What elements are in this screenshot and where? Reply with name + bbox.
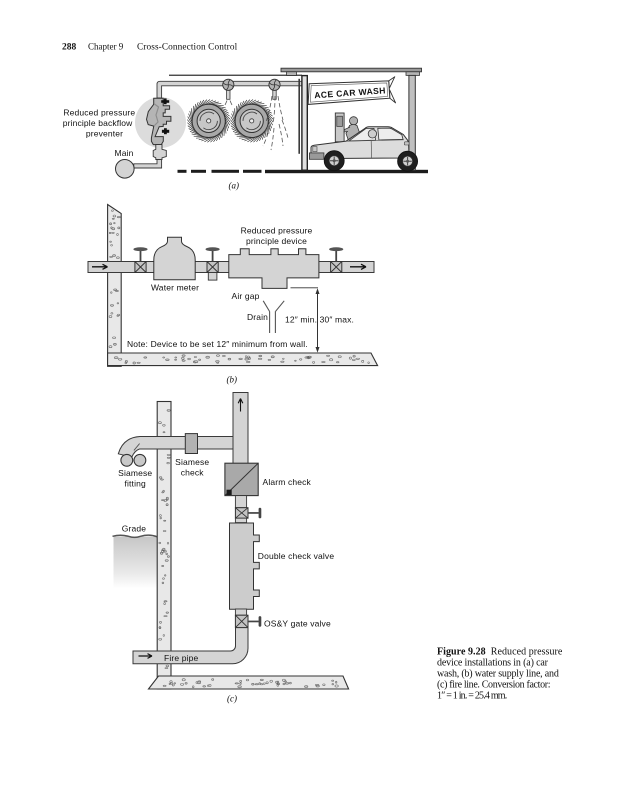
svg-text:288: 288 <box>62 43 77 53</box>
svg-text:1″ = 1 in. = 25.4 mm.: 1″ = 1 in. = 25.4 mm. <box>437 691 507 702</box>
svg-text:Main: Main <box>114 148 133 158</box>
svg-text:(a): (a) <box>229 181 240 191</box>
svg-text:Fire pipe: Fire pipe <box>164 653 199 663</box>
svg-text:Drain: Drain <box>247 312 268 322</box>
svg-text:Note: Device to be set 12″ min: Note: Device to be set 12″ minimum from … <box>127 339 308 349</box>
svg-text:preventer: preventer <box>86 129 123 139</box>
svg-text:Figure 9.28 Reduced pressure: Figure 9.28 Reduced pressure <box>437 647 563 658</box>
svg-text:Cross-Connection Control: Cross-Connection Control <box>137 43 238 53</box>
svg-text:(c): (c) <box>227 694 237 704</box>
svg-text:12″ min. 30″ max.: 12″ min. 30″ max. <box>285 314 354 324</box>
svg-text:Water meter: Water meter <box>151 283 199 293</box>
svg-text:Air gap: Air gap <box>232 291 260 301</box>
svg-text:principle backflow: principle backflow <box>63 118 133 128</box>
svg-text:(c) fire line. Conversion fact: (c) fire line. Conversion factor: <box>437 680 550 691</box>
svg-text:Siamese: Siamese <box>175 457 209 467</box>
svg-text:Reduced pressure: Reduced pressure <box>63 108 135 118</box>
svg-text:check: check <box>181 468 205 478</box>
svg-text:Grade: Grade <box>122 524 146 534</box>
svg-text:OS&Y gate valve: OS&Y gate valve <box>264 619 331 629</box>
svg-text:Reduced pressure: Reduced pressure <box>241 226 313 236</box>
svg-text:principle device: principle device <box>246 236 307 246</box>
svg-text:Chapter 9: Chapter 9 <box>88 42 124 52</box>
svg-text:device installations in (a) ca: device installations in (a) car <box>437 658 549 669</box>
svg-text:wash, (b) water supply line, a: wash, (b) water supply line, and <box>437 669 559 680</box>
svg-text:Double check valve: Double check valve <box>258 551 335 561</box>
svg-text:fitting: fitting <box>125 479 146 489</box>
svg-text:Alarm check: Alarm check <box>263 477 312 487</box>
svg-text:(b): (b) <box>227 375 238 385</box>
svg-text:Siamese: Siamese <box>118 468 152 478</box>
